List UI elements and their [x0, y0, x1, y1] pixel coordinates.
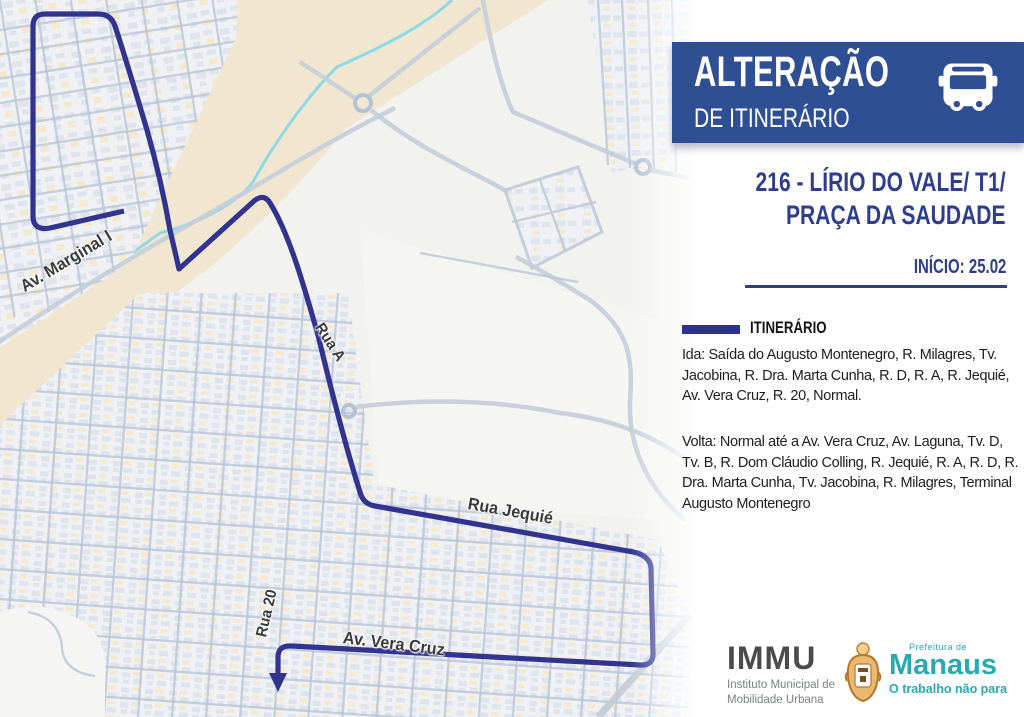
immu-logo: IMMU Instituto Municipal de Mobilidade U… — [727, 643, 835, 707]
route-title: 216 - LÍRIO DO VALE/ T1/ PRAÇA DA SAUDAD… — [756, 166, 1006, 232]
volta-paragraph: Volta: Normal até a Av. Vera Cruz, Av. L… — [682, 432, 1022, 514]
immu-subtitle-line1: Instituto Municipal de — [727, 678, 835, 693]
header-subtitle: DE ITINERÁRIO — [694, 103, 850, 134]
ida-paragraph: Ida: Saída do Augusto Montenegro, R. Mil… — [682, 345, 1022, 407]
bus-icon — [936, 55, 1000, 119]
manaus-slogan: O trabalho não para — [889, 682, 1007, 696]
route-title-line1: 216 - LÍRIO DO VALE/ T1/ — [756, 166, 1006, 199]
legend: ITINERÁRIO — [682, 318, 848, 338]
route-map-graphic — [0, 0, 700, 717]
route-title-line2: PRAÇA DA SAUDADE — [756, 199, 1006, 232]
manaus-name: Manaus — [889, 652, 1007, 679]
legend-route-swatch — [682, 325, 740, 334]
header-title: ALTERAÇÃO — [694, 48, 889, 97]
divider-rule — [745, 285, 1007, 288]
immu-subtitle-line2: Mobilidade Urbana — [727, 693, 835, 708]
legend-label: ITINERÁRIO — [750, 318, 827, 338]
page: Av. Marginal I Rua A Rua Jequié Rua 20 A… — [0, 0, 1024, 717]
header-banner: ALTERAÇÃO DE ITINERÁRIO — [672, 42, 1024, 143]
manaus-logo: Prefeitura de Manaus O trabalho não para — [889, 642, 1007, 696]
start-date: INÍCIO: 25.02 — [913, 256, 1006, 279]
immu-name: IMMU — [727, 643, 835, 673]
manaus-crest-icon — [843, 640, 883, 706]
